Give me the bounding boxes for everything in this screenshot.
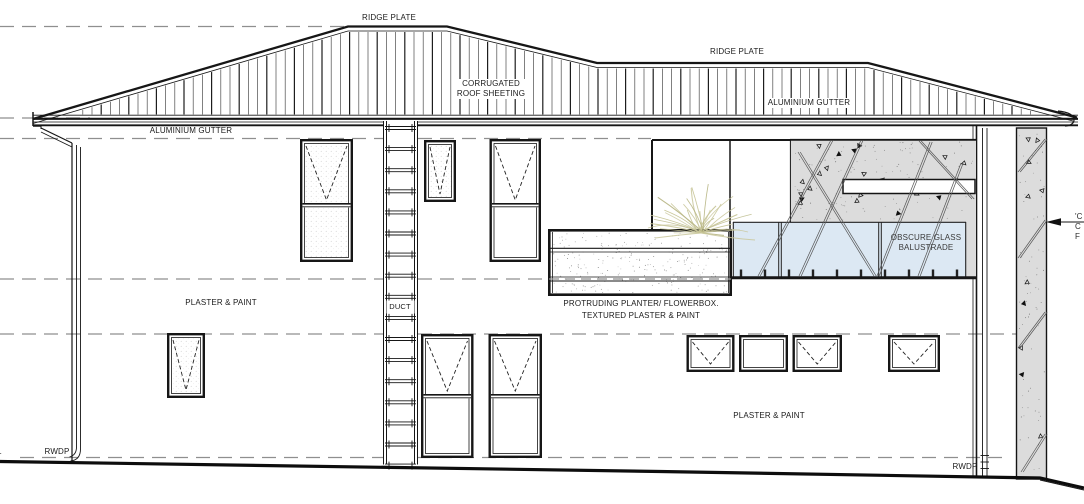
window: [424, 140, 456, 202]
label-left-edge-fragment: L: [0, 447, 2, 457]
label-corrugated-roof-sheeting: CORRUGATED ROOF SHEETING: [455, 79, 527, 99]
label-aluminium-gutter-right: ALUMINIUM GUTTER: [766, 98, 852, 108]
window: [489, 334, 543, 458]
label-duct: DUCT: [389, 302, 410, 311]
label-right-edge-fragment: 'C C F: [1075, 212, 1083, 242]
window: [167, 333, 205, 398]
stone-cladding: [790, 128, 1047, 479]
duct-ladder: [383, 120, 418, 470]
window: [793, 335, 843, 372]
label-ridge-plate-right: RIDGE PLATE: [710, 47, 764, 57]
window: [739, 335, 788, 372]
label-planter: PROTRUDING PLANTER/ FLOWERBOX. TEXTURED …: [563, 298, 718, 322]
window: [490, 139, 542, 262]
window: [888, 335, 940, 372]
planter-flowerbox: [548, 229, 732, 296]
label-aluminium-gutter-left: ALUMINIUM GUTTER: [150, 126, 232, 136]
elevation-sheet: RIDGE PLATE RIDGE PLATE CORRUGATED ROOF …: [0, 0, 1084, 504]
window: [421, 334, 474, 458]
label-plaster-paint-lower: PLASTER & PAINT: [733, 411, 804, 421]
rwdp-right-pipe: [981, 128, 990, 476]
rwdp-left-pipe: [70, 145, 81, 461]
label-rwdp-left: RWDP: [45, 447, 70, 457]
label-rwdp-right: RWDP: [953, 462, 978, 472]
ground-line: [0, 462, 1084, 491]
window: [300, 139, 353, 262]
label-ridge-plate-left: RIDGE PLATE: [362, 13, 416, 23]
window: [687, 335, 735, 372]
label-plaster-paint-upper: PLASTER & PAINT: [185, 298, 256, 308]
label-obscure-glass-balustrade: OBSCURE GLASS BALUSTRADE: [891, 233, 961, 253]
